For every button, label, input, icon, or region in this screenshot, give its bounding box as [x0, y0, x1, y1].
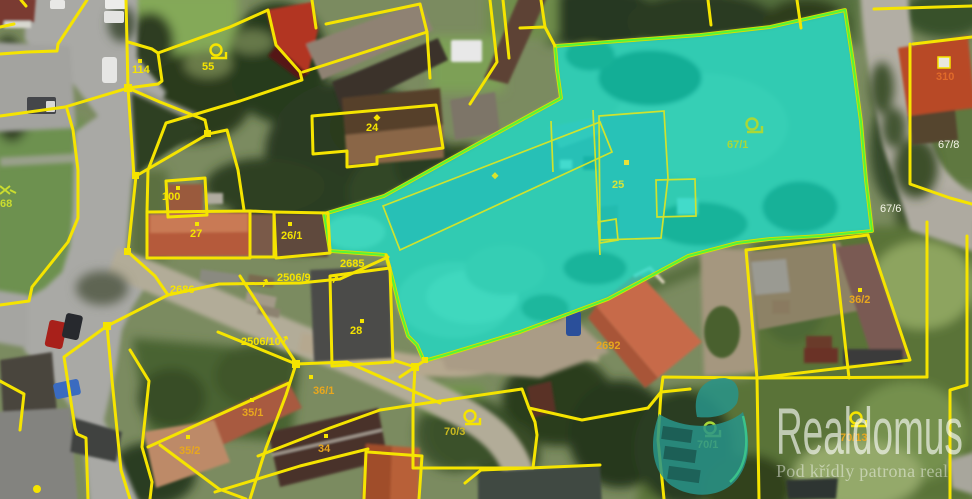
svg-text:67/1: 67/1 — [727, 139, 748, 151]
svg-text:27: 27 — [190, 228, 202, 240]
svg-text:68: 68 — [0, 198, 12, 210]
svg-text:Pod křídly patrona real: Pod křídly patrona real — [776, 461, 948, 481]
svg-text:34: 34 — [318, 443, 331, 455]
svg-text:55: 55 — [202, 61, 214, 73]
svg-text:2506/10: 2506/10 — [241, 336, 281, 348]
svg-text:2692: 2692 — [596, 340, 620, 352]
svg-text:24: 24 — [366, 122, 379, 134]
svg-text:2686: 2686 — [170, 284, 194, 296]
svg-text:25: 25 — [612, 179, 624, 191]
svg-text:100: 100 — [162, 191, 180, 203]
svg-text:67/6: 67/6 — [880, 203, 901, 215]
svg-text:36/1: 36/1 — [313, 385, 334, 397]
svg-text:26/1: 26/1 — [281, 230, 302, 242]
svg-text:28: 28 — [350, 325, 362, 337]
svg-text:Realdomus: Realdomus — [776, 396, 963, 469]
svg-text:36/2: 36/2 — [849, 294, 870, 306]
svg-text:310: 310 — [936, 71, 954, 83]
svg-text:2685: 2685 — [340, 258, 364, 270]
svg-text:70/3: 70/3 — [444, 426, 465, 438]
svg-text:35/2: 35/2 — [179, 445, 200, 457]
svg-text:67/8: 67/8 — [938, 139, 959, 151]
svg-text:2506/9: 2506/9 — [277, 272, 311, 284]
svg-text:114: 114 — [132, 64, 151, 76]
svg-text:35/1: 35/1 — [242, 407, 263, 419]
